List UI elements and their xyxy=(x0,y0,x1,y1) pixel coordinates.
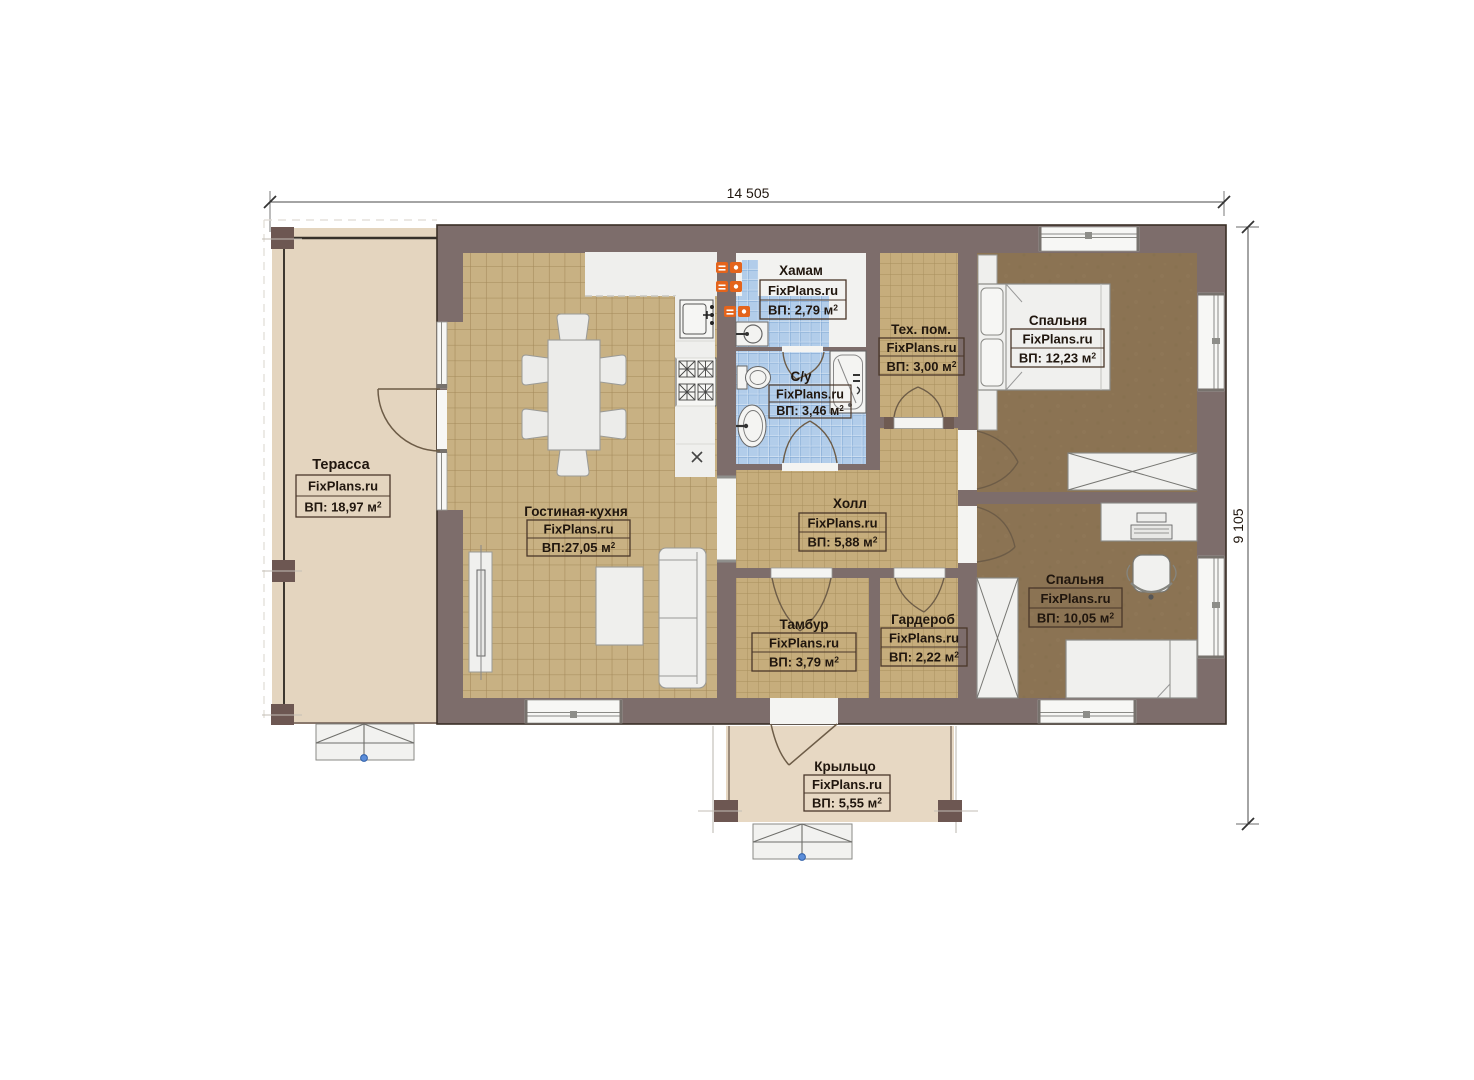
svg-text:ВП: 18,97 м2: ВП: 18,97 м2 xyxy=(304,500,381,515)
svg-text:FixPlans.ru: FixPlans.ru xyxy=(776,388,844,402)
svg-text:ВП: 12,23 м2: ВП: 12,23 м2 xyxy=(1019,351,1096,366)
svg-text:Хамам: Хамам xyxy=(779,263,823,278)
svg-text:FixPlans.ru: FixPlans.ru xyxy=(769,636,839,651)
svg-text:Гостиная-кухня: Гостиная-кухня xyxy=(524,504,627,519)
svg-text:ВП: 3,79 м2: ВП: 3,79 м2 xyxy=(769,655,839,670)
svg-text:FixPlans.ru: FixPlans.ru xyxy=(768,283,838,298)
svg-text:9 105: 9 105 xyxy=(1230,508,1246,543)
svg-text:FixPlans.ru: FixPlans.ru xyxy=(543,522,613,537)
svg-text:FixPlans.ru: FixPlans.ru xyxy=(1022,332,1092,347)
svg-text:ВП: 2,79 м2: ВП: 2,79 м2 xyxy=(768,303,838,318)
svg-text:Терасса: Терасса xyxy=(312,457,370,473)
svg-text:Спальня: Спальня xyxy=(1046,572,1104,587)
svg-text:С/у: С/у xyxy=(790,369,812,384)
svg-text:ВП: 10,05 м2: ВП: 10,05 м2 xyxy=(1037,611,1114,626)
svg-text:FixPlans.ru: FixPlans.ru xyxy=(886,340,956,355)
svg-text:ВП: 2,22 м2: ВП: 2,22 м2 xyxy=(889,650,959,665)
svg-text:FixPlans.ru: FixPlans.ru xyxy=(807,516,877,531)
svg-text:FixPlans.ru: FixPlans.ru xyxy=(308,479,378,494)
svg-text:Спальня: Спальня xyxy=(1029,313,1087,328)
svg-text:ВП: 5,88 м2: ВП: 5,88 м2 xyxy=(808,535,878,550)
svg-text:ВП: 3,00 м2: ВП: 3,00 м2 xyxy=(887,359,957,374)
svg-text:Тех. пом.: Тех. пом. xyxy=(891,322,951,337)
svg-text:Гардероб: Гардероб xyxy=(891,612,955,627)
svg-text:ВП: 5,55 м2: ВП: 5,55 м2 xyxy=(812,796,882,811)
svg-text:FixPlans.ru: FixPlans.ru xyxy=(889,631,959,646)
svg-text:14 505: 14 505 xyxy=(727,185,770,201)
svg-text:Крыльцо: Крыльцо xyxy=(814,759,875,774)
svg-text:ВП: 3,46 м2: ВП: 3,46 м2 xyxy=(776,404,844,418)
svg-text:FixPlans.ru: FixPlans.ru xyxy=(812,777,882,792)
svg-text:ВП:27,05 м2: ВП:27,05 м2 xyxy=(542,540,616,555)
svg-text:FixPlans.ru: FixPlans.ru xyxy=(1040,591,1110,606)
svg-text:Холл: Холл xyxy=(833,496,867,511)
svg-text:Тамбур: Тамбур xyxy=(780,617,829,632)
